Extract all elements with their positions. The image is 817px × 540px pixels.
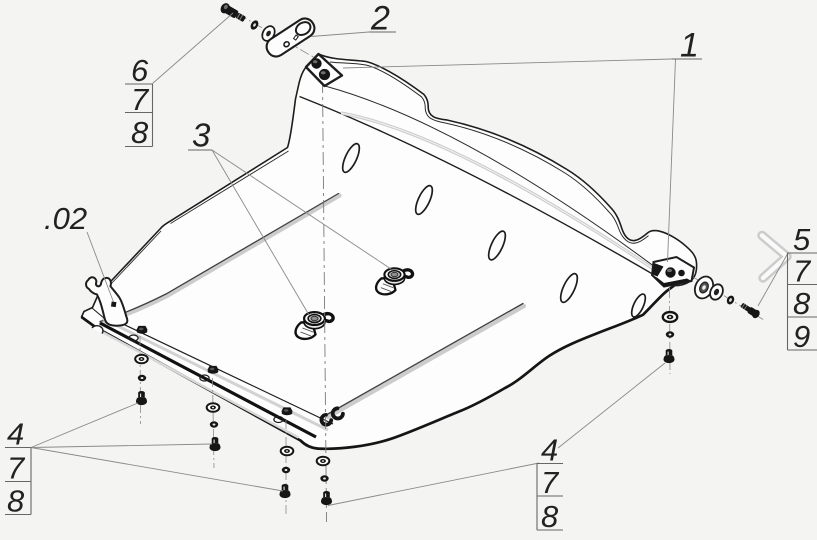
svg-text:.02: .02 — [44, 201, 87, 236]
svg-text:7: 7 — [541, 465, 560, 500]
svg-text:4: 4 — [541, 433, 558, 468]
svg-text:8: 8 — [131, 115, 149, 150]
svg-text:7: 7 — [7, 451, 26, 486]
svg-text:3: 3 — [192, 117, 211, 154]
svg-text:7: 7 — [131, 82, 150, 117]
svg-text:4: 4 — [7, 417, 24, 452]
svg-text:8: 8 — [7, 484, 25, 519]
svg-text:8: 8 — [793, 286, 811, 321]
svg-text:9: 9 — [793, 319, 810, 354]
svg-text:5: 5 — [793, 222, 811, 257]
svg-text:8: 8 — [541, 499, 559, 534]
svg-text:2: 2 — [370, 0, 390, 38]
svg-text:7: 7 — [793, 254, 812, 289]
svg-text:1: 1 — [680, 27, 699, 65]
